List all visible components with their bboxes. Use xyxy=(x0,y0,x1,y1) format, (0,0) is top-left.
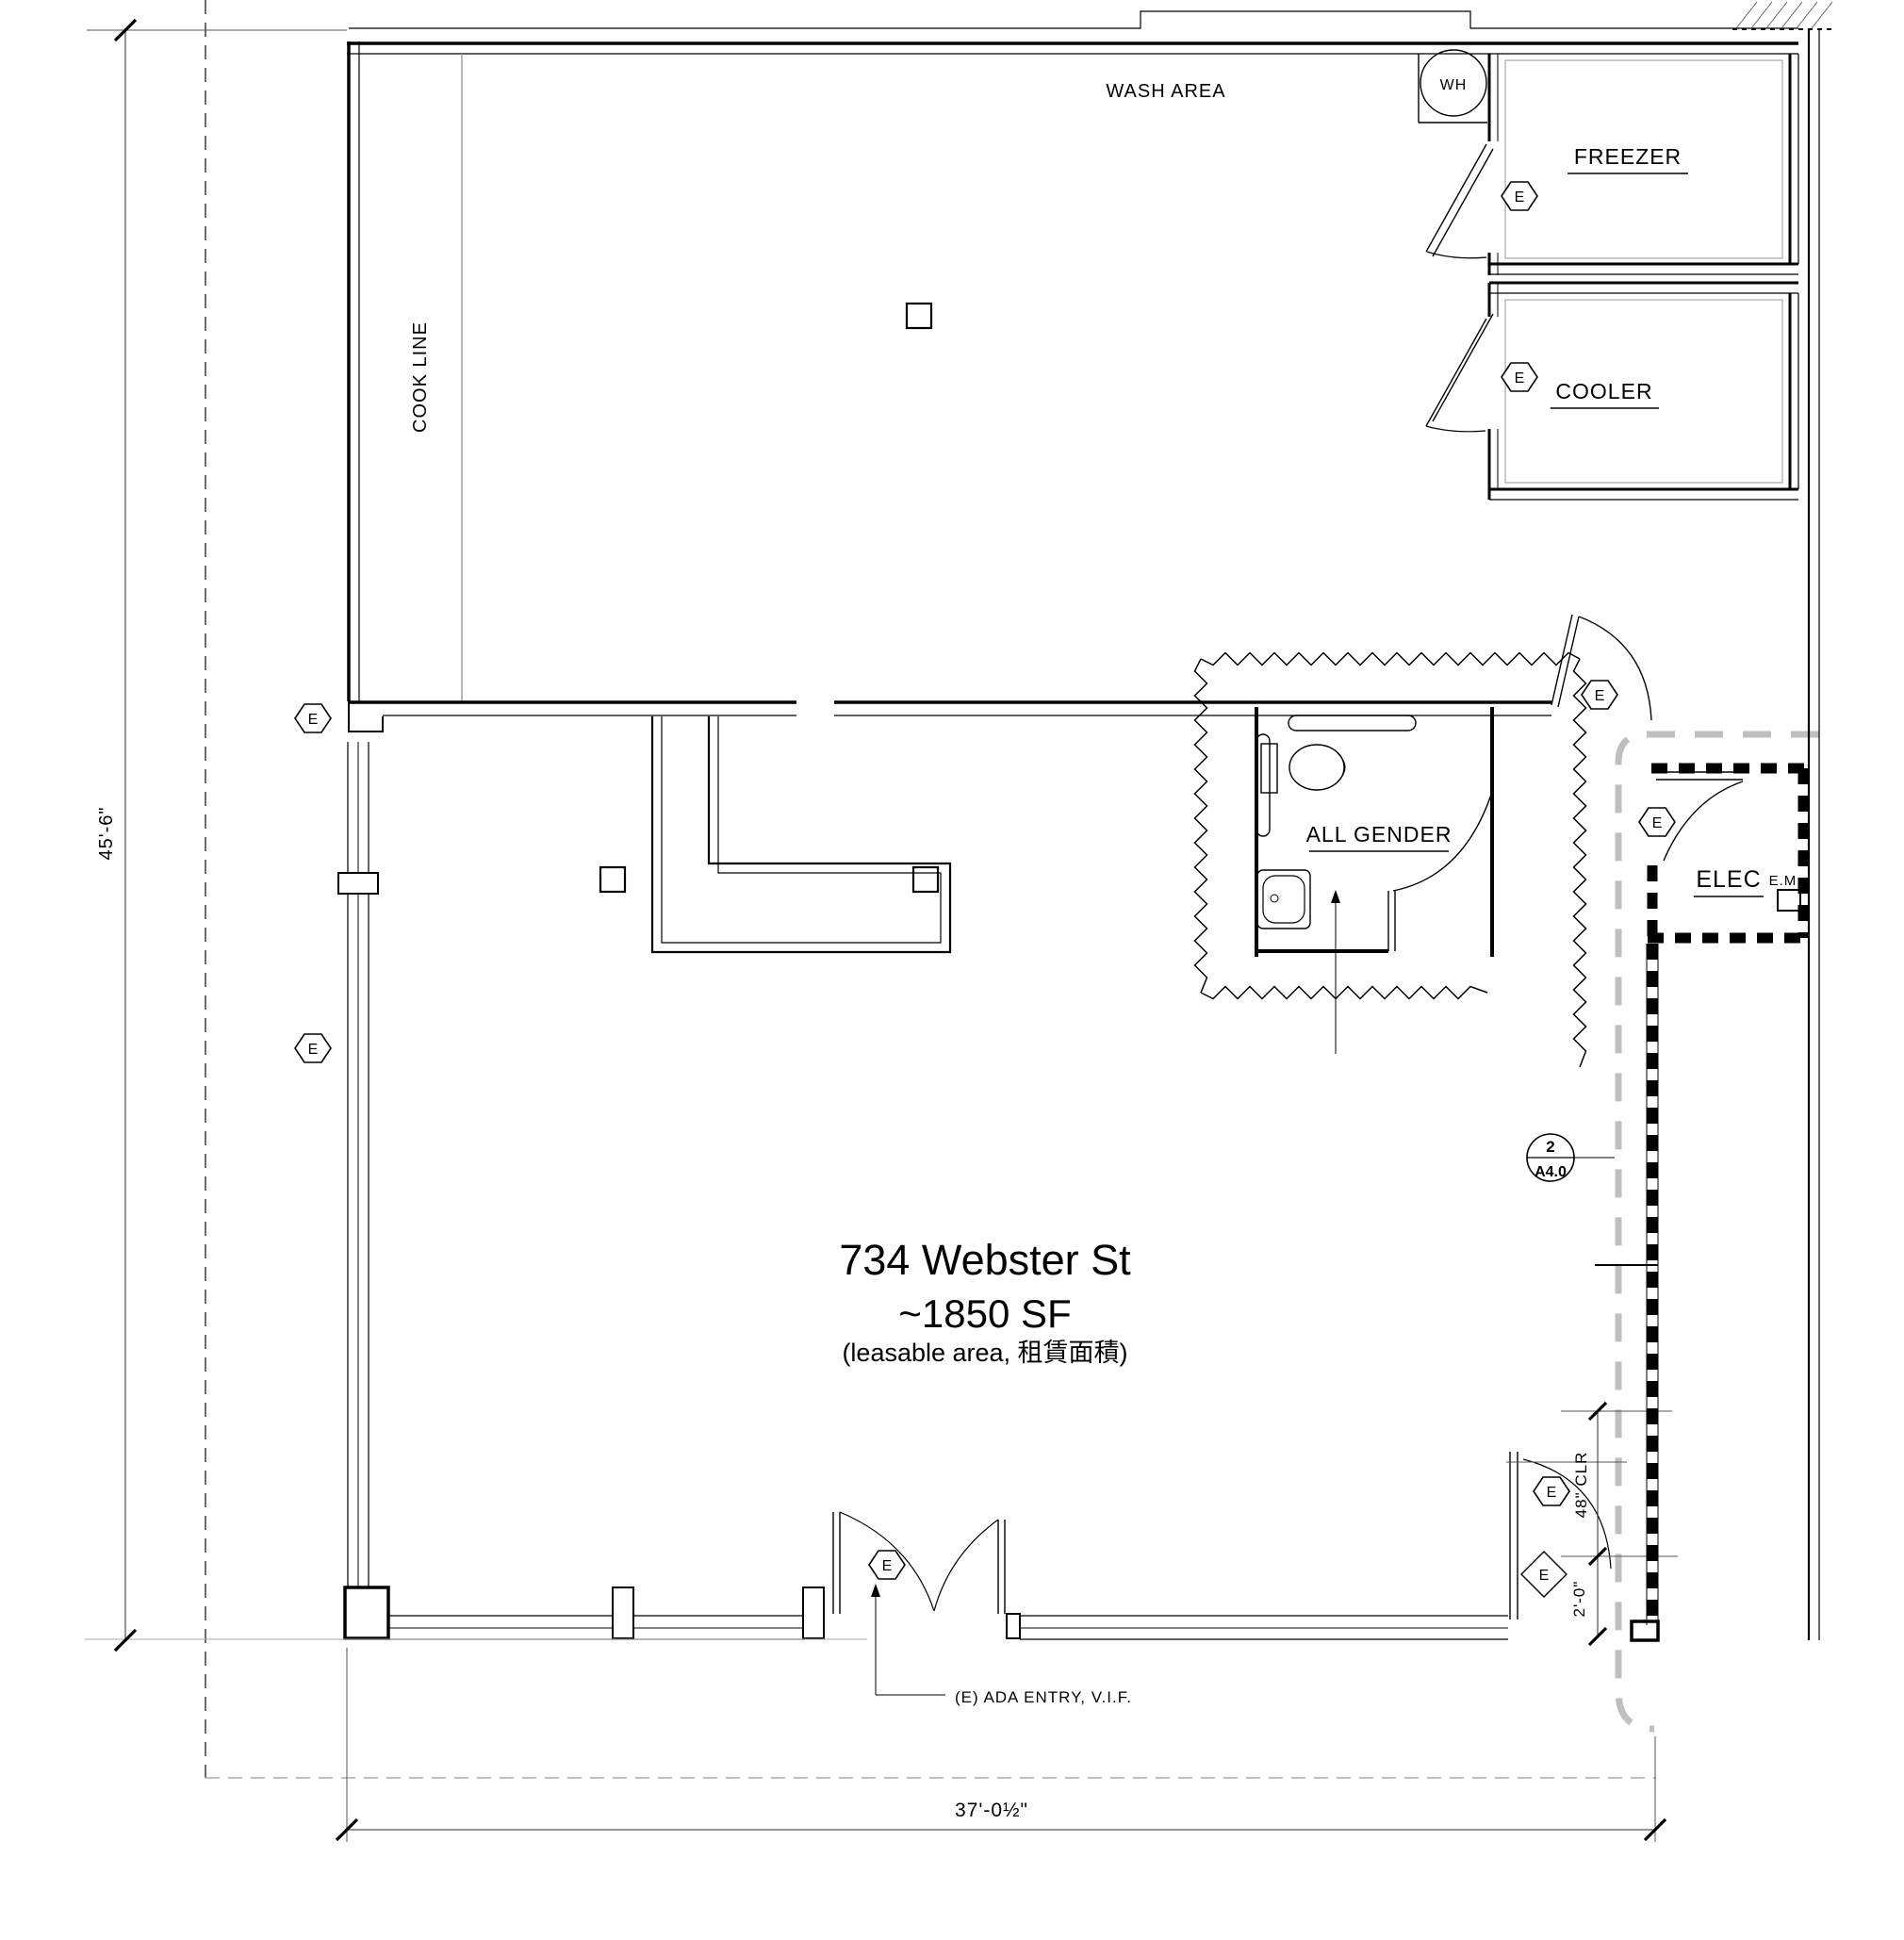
existing-symbol-cooler: E xyxy=(1502,363,1537,391)
sink xyxy=(1257,870,1310,929)
existing-symbol-letter: E xyxy=(1515,370,1525,386)
bottom-dimension: 37'-0½" xyxy=(336,1648,1666,1842)
existing-symbol-letter: E xyxy=(308,1042,319,1058)
detail-callout: 2 A4.0 xyxy=(1527,1134,1615,1181)
left-dimension: 45'-6" xyxy=(85,20,867,1651)
left-storefront xyxy=(338,742,388,1638)
existing-symbol-vestibule: E xyxy=(1582,681,1617,709)
toilet xyxy=(1289,745,1344,790)
existing-symbol-letter: E xyxy=(882,1558,893,1574)
cook-line-label: COOK LINE xyxy=(410,321,431,433)
column-markers xyxy=(600,304,938,892)
service-partition xyxy=(652,716,950,952)
existing-symbol-elec: E xyxy=(1639,808,1675,836)
interior-wall xyxy=(349,701,1551,732)
area-note-label: (leasable area, 租賃面積) xyxy=(842,1339,1127,1367)
door-offset-dim-label: 2'-0" xyxy=(1570,1581,1588,1618)
cook-line-area: COOK LINE xyxy=(410,54,462,701)
clearance-dim-label: 48" CLR xyxy=(1572,1452,1590,1519)
exterior-walls xyxy=(347,11,1819,1640)
detail-number: 2 xyxy=(1546,1138,1554,1156)
detail-sheet: A4.0 xyxy=(1535,1164,1567,1180)
floor-plan: COOK LINE ( xyxy=(0,0,1904,1940)
elec-meter xyxy=(1778,890,1800,911)
corner-pillar-right xyxy=(1632,1621,1658,1640)
existing-symbol-diamond: E xyxy=(1521,1552,1567,1597)
existing-symbol-freezer: E xyxy=(1502,182,1537,210)
grab-bar xyxy=(1256,734,1270,836)
existing-symbol-letter: E xyxy=(1547,1485,1557,1501)
freezer-room: FREEZER xyxy=(1426,54,1798,275)
storefront-mullion xyxy=(338,873,378,894)
water-heater-closet: WH xyxy=(1419,50,1487,123)
freezer-label: FREEZER xyxy=(1574,144,1682,169)
existing-symbol-letter: E xyxy=(1515,189,1525,206)
existing-symbol-letter: E xyxy=(1595,688,1605,704)
address-label: 734 Webster St xyxy=(839,1236,1131,1284)
elec-meter-label: E.M. xyxy=(1769,873,1802,889)
storefront-mullion xyxy=(613,1587,633,1638)
restroom: ALL GENDER xyxy=(1255,707,1492,1054)
elec-label: ELEC xyxy=(1696,866,1761,893)
area-label: ~1850 SF xyxy=(898,1291,1071,1336)
title-block: 734 Webster St ~1850 SF (leasable area, … xyxy=(839,1236,1131,1367)
wash-area-label: WASH AREA xyxy=(1106,81,1225,102)
existing-symbol-storefront-lower: E xyxy=(295,1034,331,1062)
existing-symbol-letter: E xyxy=(1539,1568,1550,1584)
left-dim-label: 45'-6" xyxy=(96,807,117,861)
grab-bar xyxy=(1288,715,1416,731)
existing-symbol-storefront-upper: E xyxy=(295,704,331,732)
existing-symbol-letter: E xyxy=(308,712,319,728)
water-heater-label: WH xyxy=(1440,77,1468,93)
existing-symbol-main-entry: E xyxy=(869,1551,905,1579)
main-entry-door: (E) ADA ENTRY, V.I.F. xyxy=(833,1512,1132,1706)
existing-symbol-right-entry: E xyxy=(1534,1477,1569,1505)
restroom-label: ALL GENDER xyxy=(1306,822,1453,847)
cooler-room: COOLER xyxy=(1426,283,1798,500)
cooler-label: COOLER xyxy=(1555,379,1652,403)
elec-room: ELEC E.M. xyxy=(1647,768,1807,1625)
corner-pillar-left xyxy=(345,1587,388,1638)
bottom-storefront xyxy=(388,1587,1658,1640)
ada-entry-note: (E) ADA ENTRY, V.I.F. xyxy=(955,1688,1132,1706)
bottom-dim-label: 37'-0½" xyxy=(955,1800,1028,1821)
entry-jamb xyxy=(803,1587,824,1638)
property-line xyxy=(205,0,1656,1778)
entry-jamb xyxy=(1007,1614,1020,1638)
existing-symbol-letter: E xyxy=(1652,815,1663,831)
right-entry-door xyxy=(1506,1452,1627,1619)
existing-symbols: E E E E E E E E xyxy=(295,182,1675,1597)
roof-hatch xyxy=(1732,2,1836,29)
